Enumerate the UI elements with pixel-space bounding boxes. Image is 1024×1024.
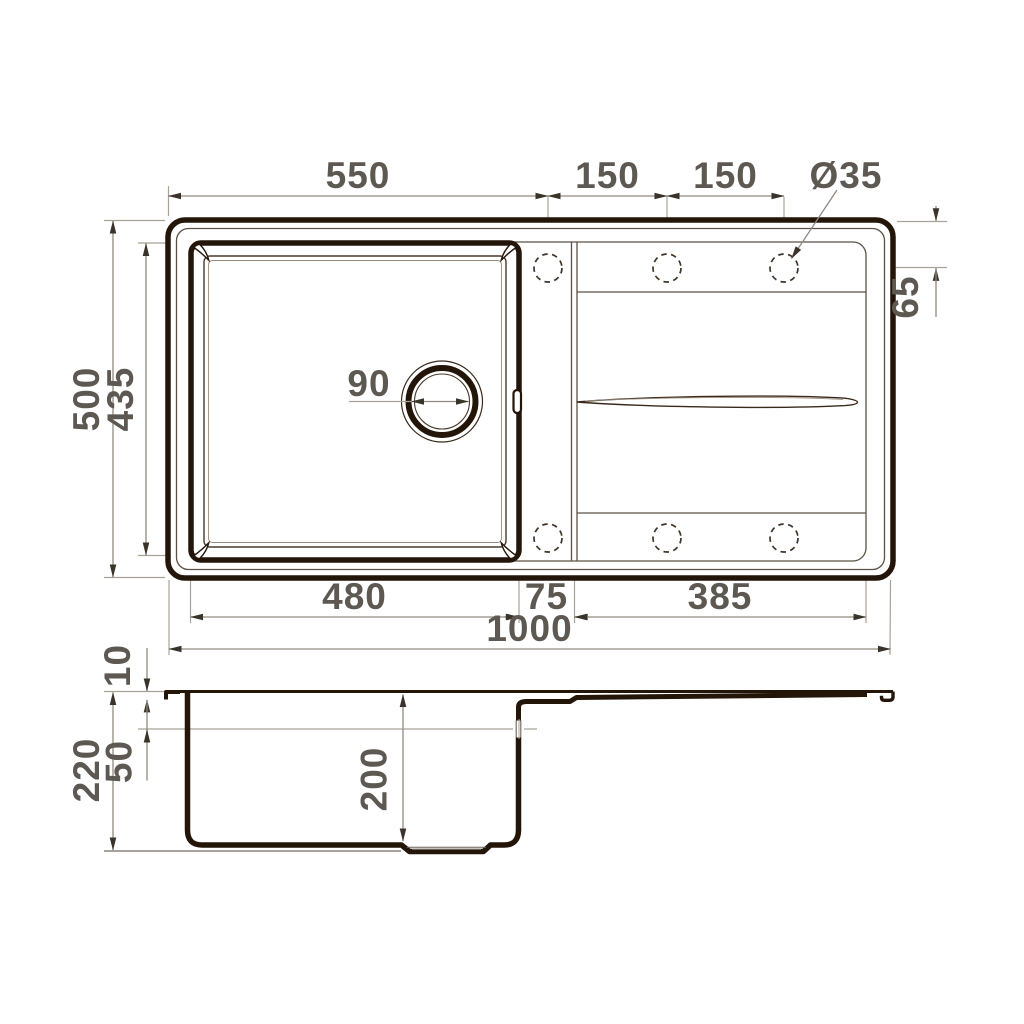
dim-150a-label: 150 bbox=[575, 155, 640, 196]
dim-1000: 1000 bbox=[169, 608, 891, 649]
drainboard-underside bbox=[519, 695, 868, 722]
top-view: 550 150 150 Ø35 500 435 65 bbox=[66, 155, 947, 655]
dim-435: 435 bbox=[100, 244, 146, 556]
dim-200-label: 200 bbox=[354, 747, 395, 812]
dim-435-label: 435 bbox=[100, 367, 141, 432]
dim-385: 385 bbox=[575, 576, 867, 617]
overflow-slot bbox=[514, 390, 522, 413]
dim-1000-label: 1000 bbox=[486, 608, 572, 649]
dim-550: 550 bbox=[169, 155, 549, 196]
rim-lip-left bbox=[166, 692, 180, 700]
dim-50-label: 50 bbox=[99, 740, 140, 783]
dim-10-label: 10 bbox=[97, 644, 138, 687]
sink-profile bbox=[166, 692, 893, 852]
dim-d35-label: Ø35 bbox=[810, 155, 883, 196]
dim-385-label: 385 bbox=[688, 576, 753, 617]
drawing-canvas: 550 150 150 Ø35 500 435 65 bbox=[0, 0, 1024, 1024]
dim-550-label: 550 bbox=[326, 155, 391, 196]
dim-150-a: 150 bbox=[548, 155, 667, 196]
dim-480-label: 480 bbox=[322, 576, 387, 617]
dim-65-label: 65 bbox=[885, 275, 926, 318]
dim-480: 480 bbox=[191, 576, 520, 617]
dim-150b-label: 150 bbox=[693, 155, 758, 196]
ext-line bbox=[890, 580, 891, 655]
dim-200: 200 bbox=[354, 695, 404, 842]
dim-150-b: 150 bbox=[667, 155, 784, 196]
side-view: 220 10 50 200 bbox=[66, 644, 893, 852]
side-view-extension-lines bbox=[104, 692, 537, 852]
dim-90-label: 90 bbox=[347, 363, 390, 404]
dim-10: 10 bbox=[97, 644, 147, 714]
dim-50: 50 bbox=[99, 700, 148, 783]
sink-technical-drawing: 550 150 150 Ø35 500 435 65 bbox=[0, 0, 1024, 1024]
